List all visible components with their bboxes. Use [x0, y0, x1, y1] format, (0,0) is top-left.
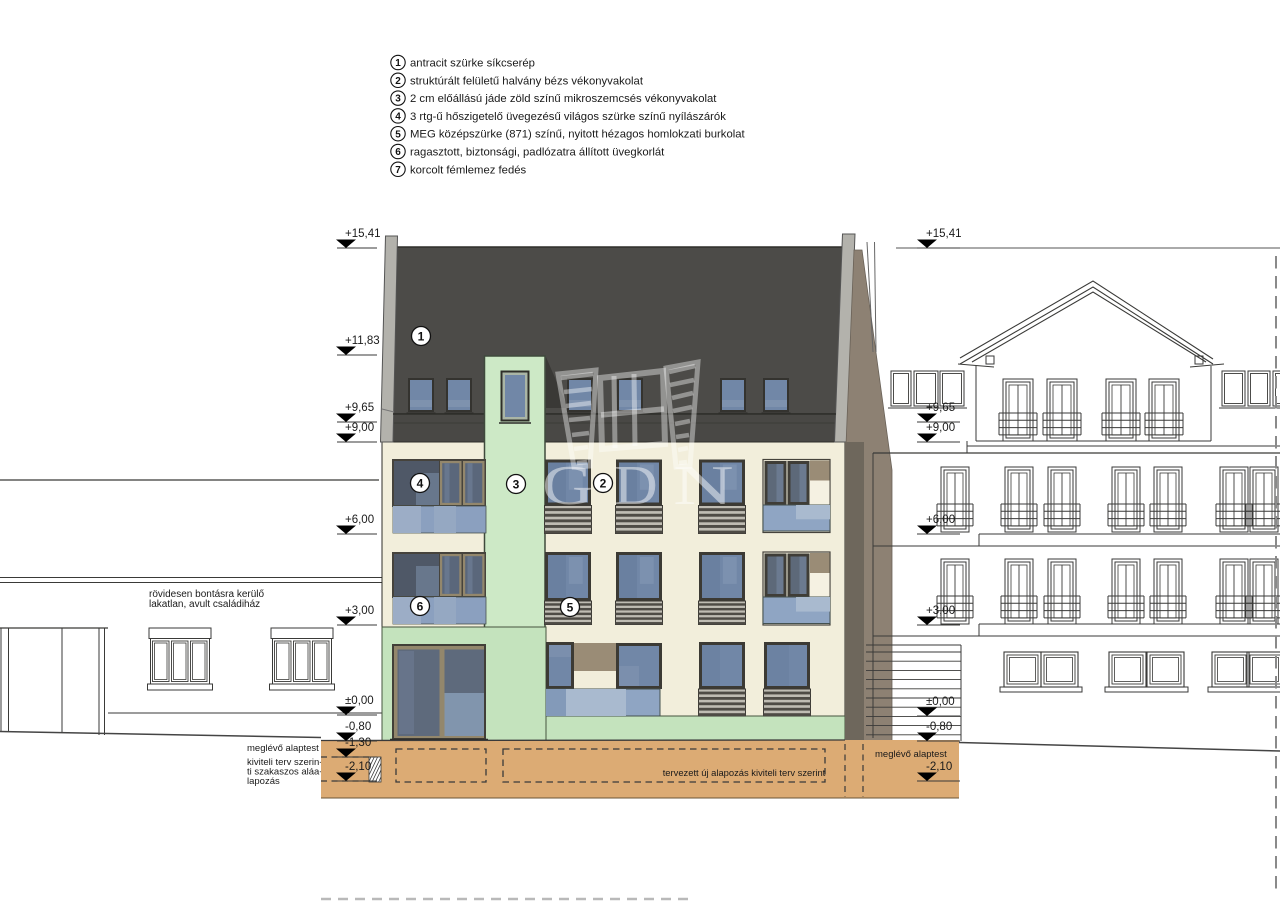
svg-text:+9,65: +9,65	[926, 402, 955, 414]
svg-text:-0,80: -0,80	[926, 721, 952, 733]
svg-text:korcolt fémlemez fedés: korcolt fémlemez fedés	[410, 164, 527, 176]
svg-text:+15,41: +15,41	[345, 228, 381, 240]
svg-text:+3,00: +3,00	[345, 605, 374, 617]
svg-text:G: G	[542, 454, 594, 516]
svg-text:struktúrált felületű halvány b: struktúrált felületű halvány bézs vékony…	[410, 75, 644, 87]
svg-text:meglévő alaptest: meglévő alaptest	[247, 743, 319, 754]
svg-text:3: 3	[395, 94, 401, 105]
svg-text:6: 6	[395, 147, 401, 158]
svg-text:-0,80: -0,80	[345, 721, 371, 733]
svg-text:+6,00: +6,00	[345, 514, 374, 526]
svg-text:+9,00: +9,00	[345, 422, 374, 434]
svg-text:1: 1	[395, 58, 401, 69]
svg-text:antracit szürke síkcserép: antracit szürke síkcserép	[410, 58, 535, 70]
svg-text:7: 7	[395, 165, 401, 176]
svg-text:MEG középszürke (871) színű, n: MEG középszürke (871) színű, nyitott héz…	[410, 129, 746, 141]
svg-text:6: 6	[417, 599, 424, 613]
svg-text:ragasztott, biztonsági, padlóz: ragasztott, biztonsági, padlózatra állít…	[410, 147, 665, 159]
svg-text:tervezett új alapozás kiviteli: tervezett új alapozás kiviteli terv szer…	[663, 767, 826, 778]
svg-text:3 rtg-ű hőszigetelő üvegezésű: 3 rtg-ű hőszigetelő üvegezésű világos sz…	[410, 111, 726, 123]
svg-text:2 cm előállású jáde zöld színű: 2 cm előállású jáde zöld színű mikroszem…	[410, 93, 717, 105]
svg-text:D: D	[614, 454, 658, 516]
svg-text:5: 5	[395, 129, 401, 140]
svg-text:3: 3	[513, 477, 520, 491]
svg-text:lapozás: lapozás	[247, 776, 280, 787]
svg-text:lakatlan, avult családiház: lakatlan, avult családiház	[149, 599, 260, 610]
svg-text:N: N	[673, 455, 734, 517]
svg-text:4: 4	[395, 112, 401, 123]
svg-text:2: 2	[600, 476, 607, 490]
svg-text:4: 4	[417, 476, 424, 490]
svg-text:1: 1	[418, 329, 425, 343]
svg-text:+9,65: +9,65	[345, 402, 374, 414]
svg-text:±0,00: ±0,00	[345, 695, 374, 707]
svg-text:5: 5	[567, 600, 574, 614]
svg-text:-1,30: -1,30	[345, 737, 371, 749]
svg-text:±0,00: ±0,00	[926, 696, 955, 708]
svg-text:meglévő alaptest: meglévő alaptest	[875, 749, 947, 760]
svg-text:-2,10: -2,10	[926, 761, 952, 773]
svg-text:+3,00: +3,00	[926, 605, 955, 617]
svg-text:+15,41: +15,41	[926, 228, 962, 240]
svg-text:+6,00: +6,00	[926, 514, 955, 526]
svg-text:-2,10: -2,10	[345, 761, 371, 773]
svg-text:2: 2	[395, 76, 401, 87]
svg-text:+11,83: +11,83	[345, 335, 380, 347]
svg-text:+9,00: +9,00	[926, 422, 955, 434]
